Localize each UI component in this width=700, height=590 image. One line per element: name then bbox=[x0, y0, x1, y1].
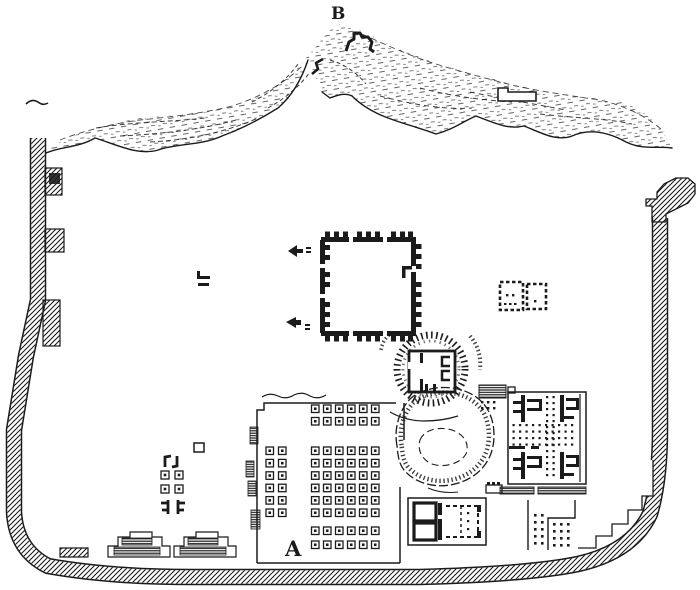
fort-tooth bbox=[375, 232, 380, 238]
label-courtyard-a: A bbox=[284, 536, 302, 561]
column-base-dot bbox=[326, 529, 329, 532]
fort-tooth bbox=[325, 245, 330, 250]
fort-tooth bbox=[366, 232, 371, 238]
column-base-grid bbox=[266, 405, 379, 549]
column-dot bbox=[553, 450, 555, 452]
column-dot bbox=[545, 424, 547, 426]
column-base-dot bbox=[374, 511, 377, 514]
column-base-dot bbox=[374, 449, 377, 452]
column-dot bbox=[546, 426, 548, 428]
gate-stair-block bbox=[114, 547, 160, 555]
column-dot bbox=[571, 431, 573, 433]
fort-tooth bbox=[416, 312, 422, 317]
column-base-dot bbox=[326, 407, 329, 410]
arc-hachure-right bbox=[470, 336, 480, 370]
column-dot bbox=[541, 535, 544, 538]
column-base-dot bbox=[268, 511, 271, 514]
wall-bump bbox=[60, 548, 88, 557]
courtyard-walls bbox=[257, 403, 404, 563]
fort-tooth bbox=[325, 232, 330, 238]
column-dot bbox=[553, 414, 555, 416]
terrace-bar bbox=[500, 487, 534, 494]
column-dot bbox=[534, 528, 537, 531]
gate-mark bbox=[288, 245, 303, 257]
column-dot bbox=[534, 535, 537, 538]
site-plan-drawing: B bbox=[0, 0, 700, 590]
column-base-dot bbox=[314, 449, 317, 452]
palace-building bbox=[408, 498, 486, 545]
column-dot bbox=[519, 424, 521, 426]
column-dot bbox=[519, 437, 521, 439]
fort-tooth bbox=[391, 336, 396, 342]
column-dot bbox=[467, 528, 469, 530]
column-base-dot bbox=[350, 499, 353, 502]
fort-tooth bbox=[416, 322, 422, 327]
column-dot bbox=[481, 407, 483, 409]
column-dot bbox=[560, 544, 563, 547]
fort-walls bbox=[320, 237, 416, 336]
ruin-square bbox=[194, 443, 204, 452]
column-dot bbox=[546, 432, 548, 434]
column-base-dot bbox=[350, 474, 353, 477]
dotted-room bbox=[527, 284, 546, 309]
column-dot bbox=[546, 408, 548, 410]
column-dot bbox=[546, 444, 548, 446]
column-base-dot bbox=[362, 487, 365, 490]
fort-tooth bbox=[334, 232, 339, 238]
fort-tooth bbox=[325, 255, 330, 260]
courtyard-pilasters bbox=[246, 427, 260, 529]
mountain-ridge: B bbox=[26, 4, 672, 153]
tumulus-outline bbox=[396, 387, 494, 485]
gate-structure bbox=[174, 532, 236, 557]
column-dot bbox=[539, 437, 541, 439]
column-dot bbox=[567, 530, 570, 533]
column-dot bbox=[541, 542, 544, 545]
column-dot bbox=[532, 444, 534, 446]
column-base-dot bbox=[314, 543, 317, 546]
column-dot bbox=[553, 408, 555, 410]
fort-tooth bbox=[408, 232, 413, 238]
gate-stair-block bbox=[188, 538, 218, 545]
column-base-dot bbox=[362, 462, 365, 465]
gate-structure bbox=[108, 532, 170, 557]
column-dot bbox=[546, 474, 548, 476]
column-dot bbox=[553, 462, 555, 464]
column-base-dot bbox=[362, 543, 365, 546]
column-dot bbox=[532, 437, 534, 439]
dot bbox=[534, 300, 536, 302]
column-dot bbox=[552, 424, 554, 426]
column-base-dot bbox=[314, 420, 317, 423]
column-base-dot bbox=[362, 529, 365, 532]
kiosk-teeth bbox=[487, 482, 500, 485]
column-dot bbox=[558, 424, 560, 426]
column-dot bbox=[513, 437, 515, 439]
column-dot bbox=[553, 530, 556, 533]
column-dot bbox=[553, 544, 556, 547]
wall-top-hook bbox=[646, 178, 695, 222]
ruin-column-bases bbox=[161, 471, 183, 493]
column-dot bbox=[571, 444, 573, 446]
column-dot bbox=[553, 420, 555, 422]
column-dot bbox=[546, 456, 548, 458]
column-dot bbox=[560, 537, 563, 540]
column-base-dot bbox=[374, 462, 377, 465]
column-base-dot bbox=[374, 529, 377, 532]
column-dot bbox=[519, 431, 521, 433]
column-dot bbox=[565, 444, 567, 446]
column-dot bbox=[541, 514, 544, 517]
column-dot bbox=[526, 431, 528, 433]
column-base-dot bbox=[362, 474, 365, 477]
column-base-dot bbox=[350, 462, 353, 465]
column-base-dot bbox=[281, 449, 284, 452]
column-base-dot bbox=[326, 449, 329, 452]
fort-tooth bbox=[400, 336, 405, 342]
column-base-dot bbox=[374, 420, 377, 423]
dot bbox=[506, 294, 508, 296]
dotted-room bbox=[500, 282, 523, 310]
southeast-enclosure bbox=[528, 500, 575, 550]
enclosure-column-dots bbox=[534, 514, 570, 547]
dot bbox=[512, 294, 514, 296]
column-base-dot bbox=[362, 407, 365, 410]
fort-tooth bbox=[343, 232, 348, 238]
fort-tooth bbox=[357, 232, 362, 238]
column-dot bbox=[558, 444, 560, 446]
column-base-dot bbox=[281, 474, 284, 477]
ruin-bracket bbox=[165, 456, 171, 467]
column-dot bbox=[553, 474, 555, 476]
column-base-dot bbox=[338, 407, 341, 410]
fort-tooth bbox=[325, 312, 330, 317]
column-base-dot bbox=[268, 499, 271, 502]
column-base-dot bbox=[362, 499, 365, 502]
column-dot bbox=[567, 537, 570, 540]
column-dot bbox=[534, 521, 537, 524]
ruin-mark bbox=[197, 271, 210, 286]
column-dot bbox=[560, 530, 563, 533]
column-base-dot bbox=[326, 487, 329, 490]
fort-tooth bbox=[416, 244, 422, 249]
column-dot bbox=[546, 450, 548, 452]
ground-line-under-ring bbox=[390, 412, 458, 421]
column-dot bbox=[513, 444, 515, 446]
column-base-dot bbox=[178, 474, 181, 477]
column-base-dot bbox=[374, 474, 377, 477]
column-base-dot bbox=[326, 420, 329, 423]
stair-dots bbox=[481, 401, 495, 409]
column-dot bbox=[532, 424, 534, 426]
column-base-dot bbox=[338, 487, 341, 490]
column-base-dot bbox=[281, 462, 284, 465]
column-base-dot bbox=[164, 488, 167, 491]
column-base-dot bbox=[326, 474, 329, 477]
fort-tooth bbox=[366, 336, 371, 342]
column-dot bbox=[539, 431, 541, 433]
fort-tooth bbox=[357, 336, 362, 342]
column-dot bbox=[571, 424, 573, 426]
column-dot bbox=[519, 444, 521, 446]
column-dot bbox=[493, 401, 495, 403]
column-base-dot bbox=[268, 474, 271, 477]
column-base-dot bbox=[268, 487, 271, 490]
column-dot bbox=[565, 424, 567, 426]
column-dot bbox=[546, 396, 548, 398]
column-dot bbox=[565, 437, 567, 439]
ground-line-south bbox=[428, 488, 458, 493]
column-dot bbox=[539, 424, 541, 426]
tumulus-inner-blob bbox=[419, 428, 467, 465]
column-dot bbox=[553, 438, 555, 440]
hypostyle-building bbox=[508, 392, 586, 484]
column-base-dot bbox=[281, 487, 284, 490]
fort-tooth bbox=[325, 282, 330, 287]
column-base-dot bbox=[350, 449, 353, 452]
wall-tower bbox=[45, 229, 64, 252]
fort-tooth bbox=[343, 336, 348, 342]
column-dot bbox=[532, 431, 534, 433]
ruin-bracket bbox=[161, 500, 168, 514]
column-dot bbox=[553, 468, 555, 470]
column-dot bbox=[526, 437, 528, 439]
column-dot bbox=[546, 462, 548, 464]
column-dot bbox=[546, 468, 548, 470]
column-dot bbox=[487, 401, 489, 403]
fort-wall-teeth bbox=[325, 232, 422, 342]
column-dot bbox=[513, 424, 515, 426]
column-base-dot bbox=[326, 543, 329, 546]
column-dot bbox=[487, 407, 489, 409]
ruined-structure bbox=[161, 443, 204, 514]
column-dot bbox=[553, 432, 555, 434]
column-base-dot bbox=[350, 529, 353, 532]
fortified-enclosure bbox=[286, 232, 422, 342]
column-dot bbox=[526, 424, 528, 426]
column-dot bbox=[526, 444, 528, 446]
column-dot bbox=[546, 438, 548, 440]
column-base-dot bbox=[314, 407, 317, 410]
fort-tooth bbox=[416, 302, 422, 307]
column-base-dot bbox=[338, 543, 341, 546]
wall-widening bbox=[43, 300, 60, 346]
column-dot bbox=[553, 537, 556, 540]
column-dot bbox=[553, 396, 555, 398]
column-base-dot bbox=[350, 511, 353, 514]
column-dot bbox=[560, 523, 563, 526]
fort-tooth bbox=[334, 336, 339, 342]
column-dot bbox=[481, 401, 483, 403]
ruin-bracket bbox=[172, 456, 177, 467]
fort-tooth bbox=[391, 232, 396, 238]
column-dot bbox=[546, 414, 548, 416]
column-dot bbox=[546, 420, 548, 422]
column-base-dot bbox=[362, 511, 365, 514]
fort-tooth bbox=[416, 282, 422, 287]
fort-tooth bbox=[325, 272, 330, 277]
gate-mark bbox=[286, 317, 301, 328]
column-dot bbox=[567, 544, 570, 547]
column-base-dot bbox=[268, 449, 271, 452]
column-dot bbox=[541, 521, 544, 524]
ground-line-left bbox=[262, 393, 326, 398]
column-base-dot bbox=[350, 407, 353, 410]
column-base-dot bbox=[164, 474, 167, 477]
column-dot bbox=[558, 437, 560, 439]
column-base-dot bbox=[350, 420, 353, 423]
column-base-dot bbox=[338, 499, 341, 502]
gate-stair-block bbox=[122, 538, 152, 545]
wall-tower-block bbox=[49, 173, 60, 184]
tick-marks bbox=[305, 247, 311, 330]
column-base-dot bbox=[374, 499, 377, 502]
column-base-dot bbox=[314, 499, 317, 502]
column-base-dot bbox=[374, 487, 377, 490]
column-base-dot bbox=[338, 529, 341, 532]
column-base-dot bbox=[362, 449, 365, 452]
column-base-dot bbox=[281, 511, 284, 514]
column-base-dot bbox=[314, 529, 317, 532]
column-base-dot bbox=[338, 449, 341, 452]
terrace-wall bbox=[500, 487, 586, 494]
column-base-dot bbox=[374, 407, 377, 410]
column-dot bbox=[553, 523, 556, 526]
column-base-dot bbox=[350, 487, 353, 490]
temple-door-gap bbox=[408, 362, 412, 369]
fort-tooth bbox=[325, 322, 330, 327]
ruin-bracket bbox=[178, 500, 185, 514]
column-base-dot bbox=[314, 487, 317, 490]
column-dot bbox=[553, 402, 555, 404]
column-dot bbox=[534, 542, 537, 545]
column-base-dot bbox=[326, 511, 329, 514]
fort-tooth bbox=[400, 232, 405, 238]
courtyard-a: A bbox=[246, 403, 404, 563]
column-base-dot bbox=[268, 462, 271, 465]
column-dot bbox=[513, 431, 515, 433]
fort-tooth bbox=[416, 292, 422, 297]
column-dot bbox=[553, 444, 555, 446]
column-base-dot bbox=[338, 420, 341, 423]
fort-tooth bbox=[375, 336, 380, 342]
gate-stair-block bbox=[180, 547, 226, 555]
column-base-dot bbox=[338, 462, 341, 465]
tumulus-hachure bbox=[401, 392, 489, 480]
fort-tooth bbox=[416, 264, 422, 269]
mountain-left-mark bbox=[26, 100, 48, 104]
fort-tooth bbox=[325, 302, 330, 307]
column-dot bbox=[493, 407, 495, 409]
column-dot bbox=[553, 456, 555, 458]
fort-tooth bbox=[325, 336, 330, 342]
label-hill-b: B bbox=[331, 4, 345, 24]
column-base-dot bbox=[374, 543, 377, 546]
column-base-dot bbox=[338, 474, 341, 477]
column-base-dot bbox=[326, 462, 329, 465]
column-dot bbox=[467, 520, 469, 522]
column-base-dot bbox=[314, 474, 317, 477]
column-dot bbox=[558, 431, 560, 433]
site-plan-figure: B bbox=[0, 0, 700, 590]
column-dot bbox=[541, 528, 544, 531]
column-base-dot bbox=[338, 511, 341, 514]
terrace-bar bbox=[538, 487, 586, 494]
column-dot bbox=[567, 523, 570, 526]
column-dot bbox=[534, 514, 537, 517]
column-dot bbox=[553, 426, 555, 428]
column-dot bbox=[546, 402, 548, 404]
column-base-dot bbox=[178, 488, 181, 491]
dotted-building bbox=[500, 282, 546, 310]
stair-block bbox=[479, 385, 506, 398]
column-base-dot bbox=[326, 499, 329, 502]
column-base-dot bbox=[314, 462, 317, 465]
column-base-dot bbox=[281, 499, 284, 502]
fort-tooth bbox=[416, 254, 422, 259]
column-dot bbox=[539, 444, 541, 446]
column-dot bbox=[571, 437, 573, 439]
column-dot bbox=[467, 512, 469, 514]
column-base-dot bbox=[314, 511, 317, 514]
column-dot bbox=[565, 431, 567, 433]
column-base-dot bbox=[350, 543, 353, 546]
column-base-dot bbox=[362, 420, 365, 423]
